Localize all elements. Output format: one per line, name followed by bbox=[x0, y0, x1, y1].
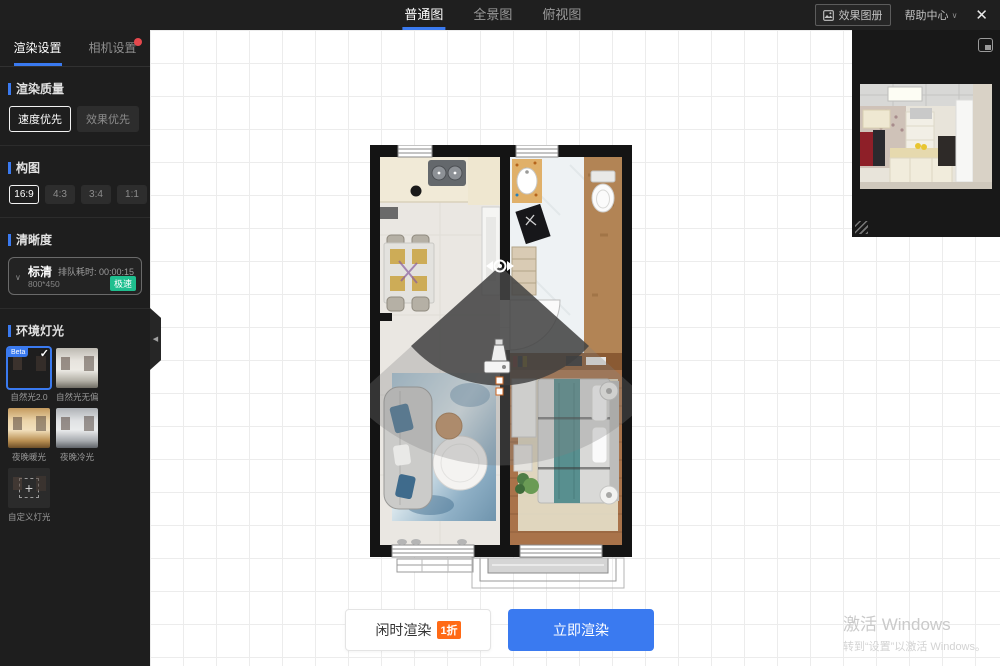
clarity-section-title: 清晰度 bbox=[8, 231, 150, 248]
composition-section-title: 构图 bbox=[8, 159, 150, 176]
render-now-label: 立即渲染 bbox=[553, 620, 609, 640]
album-button-label: 效果图册 bbox=[839, 7, 883, 23]
collapse-left-icon: ◀ bbox=[153, 335, 158, 343]
light-thumbnail bbox=[56, 408, 98, 448]
active-tab-underline bbox=[14, 63, 62, 66]
radiator bbox=[397, 559, 473, 572]
floorplan-canvas[interactable]: 闲时渲染 1折 立即渲染 激活 Windows 转到“设置”以激活 Window… bbox=[150, 30, 1000, 666]
section-accent-bar bbox=[8, 83, 11, 95]
light-natural-nocast[interactable]: 自然光无偏色 bbox=[56, 348, 98, 403]
light-option-label: 自然光无偏色 bbox=[56, 391, 98, 403]
ratio-4-3-button[interactable]: 4:3 bbox=[45, 185, 75, 204]
check-icon: ✓ bbox=[40, 348, 49, 360]
kitchen-counter bbox=[468, 157, 500, 205]
tab-render-settings[interactable]: 渲染设置 bbox=[0, 30, 75, 66]
watermark-line1: 激活 Windows bbox=[843, 610, 986, 635]
watermark-line2: 转到“设置”以激活 Windows。 bbox=[843, 638, 986, 654]
view-mode-tabs: 普通图 全景图 俯视图 bbox=[404, 0, 581, 30]
bathroom-sink bbox=[512, 159, 542, 203]
marker bbox=[496, 377, 503, 384]
render-preview-panel bbox=[852, 30, 1000, 237]
ratio-3-4-button[interactable]: 3:4 bbox=[81, 185, 111, 204]
tab-panorama-image[interactable]: 全景图 bbox=[473, 0, 512, 30]
clarity-dropdown[interactable]: ∨ 标清 800*450 排队耗时: 00:00:15 极速 bbox=[8, 257, 142, 295]
light-option-label: 自定义灯光 bbox=[8, 511, 50, 523]
light-natural-2-0[interactable]: Beta ✓ 自然光2.0 bbox=[8, 348, 50, 403]
clarity-resolution: 800*450 bbox=[28, 279, 60, 289]
tab-camera-settings[interactable]: 相机设置 bbox=[75, 30, 150, 66]
render-now-button[interactable]: 立即渲染 bbox=[508, 609, 654, 651]
idle-render-button[interactable]: 闲时渲染 1折 bbox=[345, 609, 491, 651]
divider bbox=[0, 217, 150, 218]
speed-badge: 极速 bbox=[110, 276, 136, 291]
render-album-button[interactable]: 效果图册 bbox=[815, 4, 891, 26]
divider bbox=[0, 308, 150, 309]
marker bbox=[496, 388, 503, 395]
ratio-1-1-button[interactable]: 1:1 bbox=[117, 185, 147, 204]
light-thumbnail bbox=[8, 408, 50, 448]
quality-effect-button[interactable]: 效果优先 bbox=[77, 106, 139, 132]
lighting-section-title: 环境灯光 bbox=[8, 322, 150, 339]
notification-dot bbox=[134, 38, 142, 46]
appliance bbox=[380, 207, 398, 219]
tab-normal-image[interactable]: 普通图 bbox=[404, 0, 443, 30]
quality-options: 速度优先 效果优先 bbox=[9, 106, 150, 132]
quality-section-title: 渲染质量 bbox=[8, 80, 150, 97]
bay-window bbox=[472, 558, 624, 588]
tab-topview-image[interactable]: 俯视图 bbox=[542, 0, 581, 30]
clarity-selected-value: 标清 bbox=[28, 263, 52, 280]
aspect-ratio-options: 16:9 4:3 3:4 1:1 bbox=[9, 185, 150, 204]
chevron-down-icon: ∨ bbox=[952, 11, 958, 20]
ambient-light-options: Beta ✓ 自然光2.0 自然光无偏色 夜晚暖光 夜晚冷光 + 自定义灯光 bbox=[8, 348, 144, 523]
render-preview-image[interactable] bbox=[860, 84, 992, 189]
quality-speed-button[interactable]: 速度优先 bbox=[9, 106, 71, 132]
beta-badge: Beta bbox=[8, 348, 28, 357]
kitchen-stove bbox=[411, 186, 422, 197]
divider bbox=[0, 145, 150, 146]
sidebar-collapse-handle[interactable]: ◀ bbox=[150, 308, 161, 370]
idle-render-label: 闲时渲染 bbox=[375, 620, 431, 640]
light-night-warm[interactable]: 夜晚暖光 bbox=[8, 408, 50, 463]
light-option-label: 夜晚冷光 bbox=[56, 451, 98, 463]
section-accent-bar bbox=[8, 234, 11, 246]
help-center-menu[interactable]: 帮助中心 ∨ bbox=[905, 7, 958, 23]
chevron-down-icon: ∨ bbox=[15, 273, 21, 282]
help-menu-label: 帮助中心 bbox=[905, 7, 949, 23]
render-settings-label: 渲染设置 bbox=[13, 41, 61, 55]
toilet bbox=[591, 171, 615, 212]
camera-settings-label: 相机设置 bbox=[88, 41, 136, 55]
section-accent-bar bbox=[8, 325, 11, 337]
windows-activation-watermark: 激活 Windows 转到“设置”以激活 Windows。 bbox=[843, 610, 986, 654]
sidebar-tabs: 渲染设置 相机设置 bbox=[0, 30, 150, 67]
panel-resize-handle[interactable] bbox=[855, 221, 868, 234]
top-bar: 普通图 全景图 俯视图 效果图册 帮助中心 ∨ ✕ bbox=[0, 0, 1000, 30]
album-image-icon bbox=[823, 10, 834, 21]
light-thumbnail: + bbox=[8, 468, 50, 508]
expand-preview-icon[interactable] bbox=[978, 38, 993, 52]
dining-set bbox=[384, 235, 434, 311]
light-option-label: 自然光2.0 bbox=[8, 391, 50, 403]
close-icon[interactable]: ✕ bbox=[971, 6, 992, 24]
ratio-16-9-button[interactable]: 16:9 bbox=[9, 185, 39, 204]
light-night-cold[interactable]: 夜晚冷光 bbox=[56, 408, 98, 463]
render-settings-sidebar: 渲染设置 相机设置 渲染质量 速度优先 效果优先 构图 16:9 4:3 3:4… bbox=[0, 30, 150, 666]
light-custom[interactable]: + 自定义灯光 bbox=[8, 468, 50, 523]
discount-badge: 1折 bbox=[437, 621, 460, 639]
light-thumbnail bbox=[56, 348, 98, 388]
plus-icon: + bbox=[19, 478, 39, 498]
floor-plan[interactable] bbox=[370, 145, 632, 590]
section-accent-bar bbox=[8, 162, 11, 174]
light-option-label: 夜晚暖光 bbox=[8, 451, 50, 463]
